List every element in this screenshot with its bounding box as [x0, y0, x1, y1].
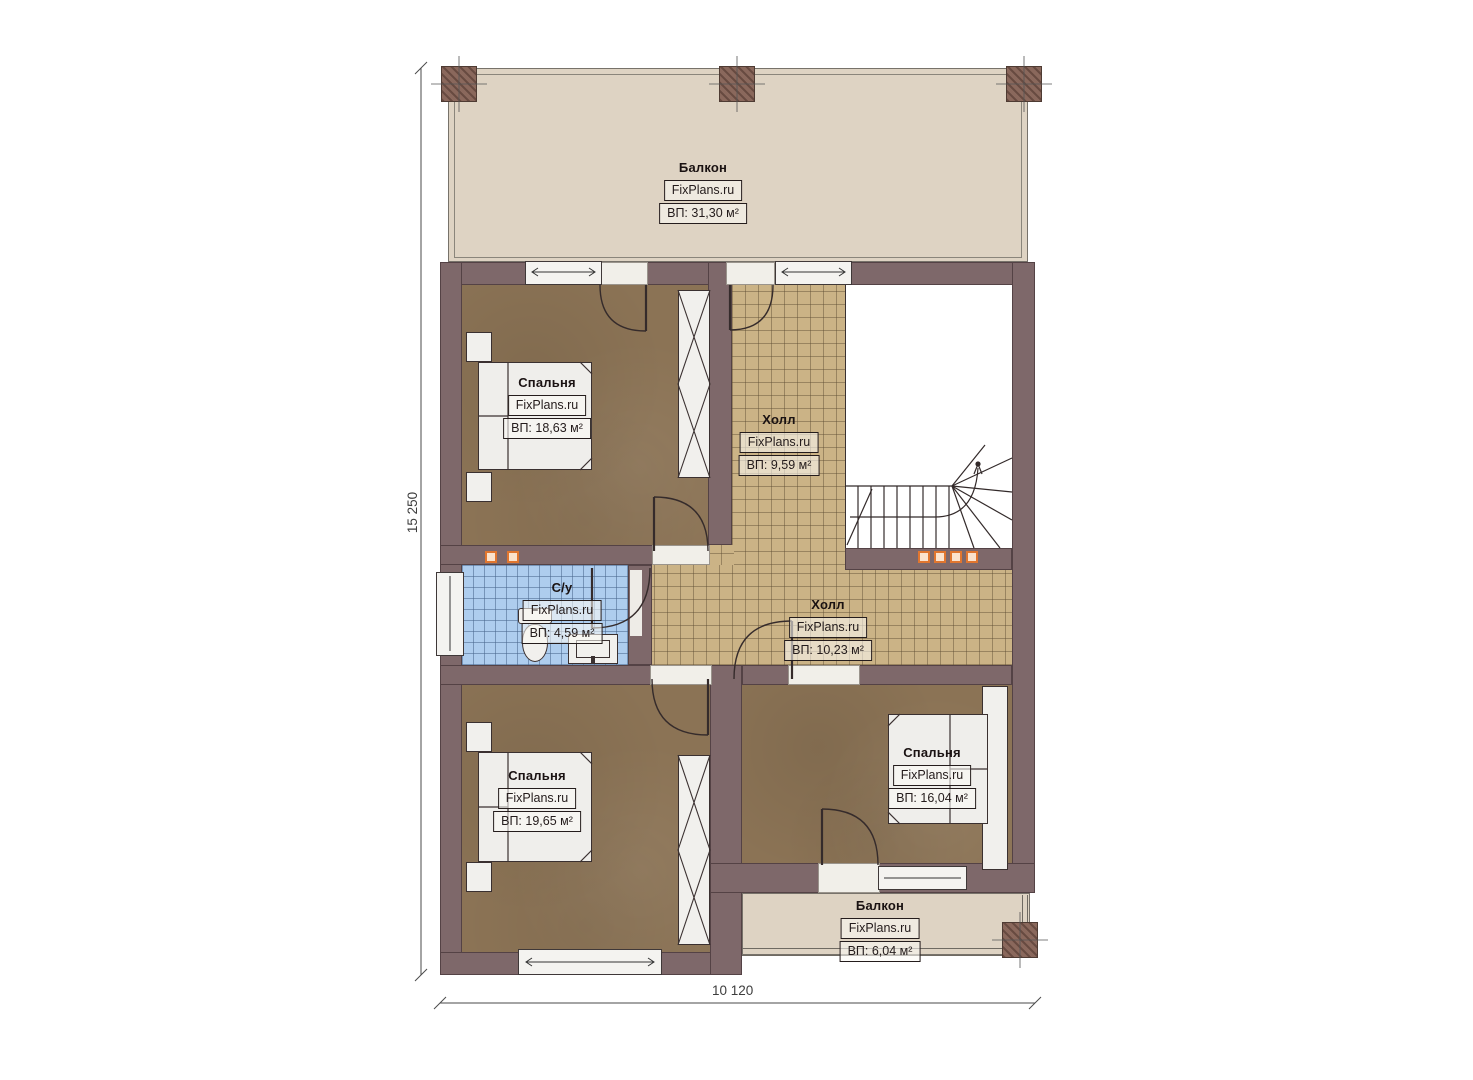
room-area: ВП: 9,59 м²: [739, 455, 820, 476]
room-name: Балкон: [659, 160, 747, 175]
column-top-left: [441, 66, 477, 102]
wall-bedroom-tl-hall: [708, 262, 732, 545]
door-opening-balcony-bedroom-tl: [598, 262, 648, 285]
room-name: Холл: [784, 597, 872, 612]
column-balcony-bottom: [1002, 922, 1038, 958]
door-opening-balcony-bedroom-br: [818, 863, 880, 893]
wall-bedrooms-divider: [710, 665, 742, 975]
window-bedroom-br-bottom: [878, 866, 967, 890]
room-name: Спальня: [503, 375, 591, 390]
nightstand: [466, 722, 492, 752]
dimension-horizontal: 10 120: [712, 983, 753, 998]
room-label-bedroom-bl: Спальня FixPlans.ru ВП: 19,65 м²: [493, 768, 581, 832]
floor-plan: Балкон FixPlans.ru ВП: 31,30 м² Спальня …: [0, 0, 1473, 1080]
wall-light-icon: [485, 551, 497, 563]
room-area: ВП: 31,30 м²: [659, 203, 747, 224]
window-bathroom-left: [436, 572, 464, 656]
room-label-balcony-bottom: Балкон FixPlans.ru ВП: 6,04 м²: [840, 898, 921, 962]
door-opening-bedroom-br: [788, 665, 860, 685]
watermark: FixPlans.ru: [664, 180, 743, 201]
wall-bedroom-br-top: [742, 665, 1012, 685]
door-opening-bedroom-tl: [652, 545, 710, 565]
room-area: ВП: 6,04 м²: [840, 941, 921, 962]
nightstand: [466, 862, 492, 892]
room-name: С/у: [522, 580, 603, 595]
door-opening-bedroom-bl: [650, 665, 712, 685]
wall-light-icon: [507, 551, 519, 563]
watermark: FixPlans.ru: [498, 788, 577, 809]
watermark: FixPlans.ru: [508, 395, 587, 416]
room-area: ВП: 16,04 м²: [888, 788, 976, 809]
stairwell-void: [845, 285, 1012, 548]
wall-light-icon: [966, 551, 978, 563]
wall-light-icon: [918, 551, 930, 563]
bathroom-door-leaf-open: [630, 570, 642, 636]
room-label-hall-lower: Холл FixPlans.ru ВП: 10,23 м²: [784, 597, 872, 661]
window-top-right: [775, 261, 852, 285]
watermark: FixPlans.ru: [893, 765, 972, 786]
watermark: FixPlans.ru: [523, 600, 602, 621]
room-name: Холл: [739, 412, 820, 427]
door-opening-balcony-hall: [726, 262, 775, 285]
nightstand: [466, 472, 492, 502]
wardrobe-bedroom-tl: [678, 290, 710, 478]
column-top-right: [1006, 66, 1042, 102]
room-label-bedroom-tl: Спальня FixPlans.ru ВП: 18,63 м²: [503, 375, 591, 439]
watermark: FixPlans.ru: [789, 617, 868, 638]
room-area: ВП: 4,59 м²: [522, 623, 603, 644]
wall-light-icon: [950, 551, 962, 563]
room-label-bathroom: С/у FixPlans.ru ВП: 4,59 м²: [522, 580, 603, 644]
column-top-middle: [719, 66, 755, 102]
watermark: FixPlans.ru: [740, 432, 819, 453]
window-top-left: [525, 261, 602, 285]
dimension-vertical: 15 250: [405, 492, 420, 533]
room-label-balcony-top: Балкон FixPlans.ru ВП: 31,30 м²: [659, 160, 747, 224]
nightstand: [466, 332, 492, 362]
room-area: ВП: 19,65 м²: [493, 811, 581, 832]
room-label-bedroom-br: Спальня FixPlans.ru ВП: 16,04 м²: [888, 745, 976, 809]
sink-faucet: [591, 656, 595, 664]
room-name: Балкон: [840, 898, 921, 913]
room-name: Спальня: [888, 745, 976, 760]
window-bedroom-bl-bottom: [518, 949, 662, 975]
wall-light-icon: [934, 551, 946, 563]
room-area: ВП: 18,63 м²: [503, 418, 591, 439]
watermark: FixPlans.ru: [841, 918, 920, 939]
hall-passage-floor: [708, 545, 734, 567]
wall-exterior-right: [1012, 262, 1035, 893]
room-name: Спальня: [493, 768, 581, 783]
wardrobe-bedroom-bl: [678, 755, 710, 945]
room-area: ВП: 10,23 м²: [784, 640, 872, 661]
room-label-hall-upper: Холл FixPlans.ru ВП: 9,59 м²: [739, 412, 820, 476]
